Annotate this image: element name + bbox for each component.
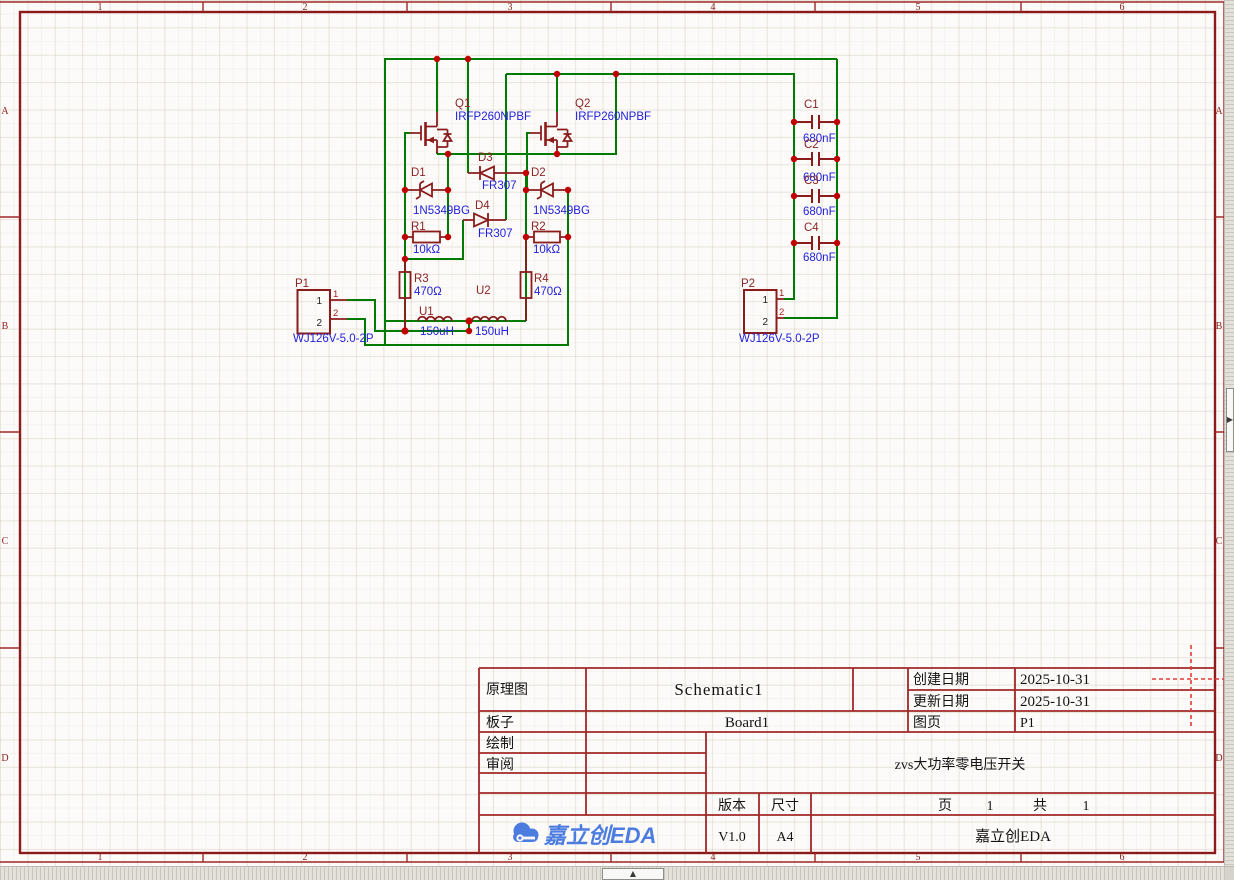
refdes-D3: D3: [478, 152, 493, 164]
pin-designator: 1: [779, 288, 784, 299]
vendor-logo-text: 嘉立创EDA: [543, 823, 656, 848]
refdes-R2: R2: [531, 221, 546, 233]
scrollbar-corner: [1225, 867, 1234, 880]
ruler-row: A: [1, 106, 9, 117]
titleblock-updated-label: 更新日期: [913, 694, 969, 710]
ruler-row: B: [1216, 321, 1223, 332]
titleblock-title: zvs大功率零电压开关: [895, 756, 1026, 773]
ruler-col: 5: [916, 2, 921, 13]
value-C4: 680nF: [803, 252, 836, 264]
sheet-ruler-labels: 1 2 3 4 5 6 1 2 3 4 5 6 A B C D A B C D: [1, 2, 1223, 863]
component-D1[interactable]: [405, 181, 448, 199]
titleblock-board-label: 板子: [486, 715, 514, 731]
component-C4[interactable]: [794, 236, 837, 250]
refdes-P2: P2: [741, 278, 755, 290]
refdes-C4: C4: [804, 222, 819, 234]
component-D3[interactable]: [468, 166, 526, 180]
refdes-U1: U1: [419, 306, 434, 318]
value-Q2: IRFP260NPBF: [575, 111, 651, 123]
refdes-R1: R1: [411, 221, 426, 233]
value-R4: 470Ω: [534, 286, 562, 298]
ruler-col: 3: [508, 2, 513, 13]
refdes-Q2: Q2: [575, 98, 590, 110]
refdes-Q1: Q1: [455, 98, 470, 110]
bottom-panel-expand-handle[interactable]: ▲: [602, 868, 664, 880]
chevron-right-icon: ▶: [1227, 416, 1233, 424]
value-D2: 1N5349BG: [533, 205, 590, 217]
titleblock-size-value: A4: [776, 830, 793, 845]
titleblock-company: 嘉立创EDA: [975, 828, 1051, 845]
value-U1: 150uH: [420, 326, 454, 338]
titleblock-page-label: 页: [938, 799, 952, 814]
component-Q1[interactable]: [410, 112, 452, 153]
component-P1[interactable]: [298, 290, 348, 334]
ruler-row: C: [1216, 536, 1223, 547]
ruler-col: 4: [711, 2, 716, 13]
value-D1: 1N5349BG: [413, 205, 470, 217]
value-D3: FR307: [482, 180, 517, 192]
titleblock-version-value: V1.0: [718, 830, 746, 845]
component-C2[interactable]: [794, 152, 837, 166]
value-U2: 150uH: [475, 326, 509, 338]
schematic-canvas[interactable]: 1 2 3 4 5 6 1 2 3 4 5 6 A B C D A B C D: [0, 0, 1234, 880]
right-panel-expand-handle[interactable]: ▶: [1226, 388, 1234, 452]
component-C3[interactable]: [794, 189, 837, 203]
ruler-col: 1: [98, 852, 103, 863]
component-D2[interactable]: [526, 181, 568, 199]
titleblock-size-label: 尺寸: [771, 798, 799, 814]
cursor-crosshair: [1152, 645, 1232, 726]
pin-designator: 1: [333, 289, 338, 300]
ruler-row: B: [2, 321, 9, 332]
ruler-row: D: [1215, 753, 1222, 764]
ruler-col: 3: [508, 852, 513, 863]
ruler-col: 4: [711, 852, 716, 863]
value-C3: 680nF: [803, 206, 836, 218]
titleblock-pages-total-label: 共: [1033, 798, 1047, 814]
titleblock-sheet-value: P1: [1020, 716, 1035, 731]
titleblock-updated-value: 2025-10-31: [1020, 694, 1090, 710]
title-block: 原理图 Schematic1 创建日期 2025-10-31 更新日期 2025…: [479, 668, 1215, 853]
titleblock-created-label: 创建日期: [913, 672, 969, 688]
titleblock-drawn-label: 绘制: [486, 736, 514, 752]
titleblock-reviewed-label: 审阅: [486, 757, 514, 773]
titleblock-schematic-value: Schematic1: [674, 680, 763, 699]
refdes-C1: C1: [804, 99, 819, 111]
value-P2: WJ126V-5.0-2P: [739, 333, 820, 345]
refdes-R4: R4: [534, 273, 549, 285]
component-R1[interactable]: [405, 232, 448, 243]
titleblock-created-value: 2025-10-31: [1020, 672, 1090, 688]
value-R3: 470Ω: [414, 286, 442, 298]
component-C1[interactable]: [794, 115, 837, 129]
ruler-row: D: [1, 753, 8, 764]
titleblock-sheet-label: 图页: [913, 716, 941, 731]
titleblock-version-label: 版本: [718, 798, 746, 814]
vendor-logo: 嘉立创EDA: [513, 823, 656, 849]
ruler-col: 2: [303, 852, 308, 863]
refdes-U2: U2: [476, 285, 491, 297]
cloud-icon: [513, 823, 539, 843]
pin-number: 2: [316, 318, 322, 329]
value-P1: WJ126V-5.0-2P: [293, 333, 374, 345]
schematic-drawing: 1 2 3 4 5 6 1 2 3 4 5 6 A B C D A B C D: [0, 0, 1234, 880]
titleblock-page-current: 1: [987, 799, 994, 814]
pin-designator: 2: [333, 308, 338, 319]
ruler-col: 6: [1120, 852, 1125, 863]
value-R1: 10kΩ: [413, 244, 441, 256]
refdes-C2: C2: [804, 139, 819, 151]
refdes-D4: D4: [475, 200, 490, 212]
ruler-col: 2: [303, 2, 308, 13]
titleblock-board-value: Board1: [725, 715, 769, 731]
chevron-up-icon: ▲: [630, 870, 636, 878]
refdes-D2: D2: [531, 167, 546, 179]
refdes-R3: R3: [414, 273, 429, 285]
value-Q1: IRFP260NPBF: [455, 111, 531, 123]
refdes-D1: D1: [411, 167, 426, 179]
pin-number: 1: [762, 295, 768, 306]
value-D4: FR307: [478, 228, 513, 240]
ruler-col: 6: [1120, 2, 1125, 13]
refdes-C3: C3: [804, 175, 819, 187]
ruler-col: 5: [916, 852, 921, 863]
titleblock-schematic-label: 原理图: [486, 683, 528, 698]
ruler-col: 1: [98, 2, 103, 13]
pin-number: 1: [316, 296, 322, 307]
sheet-frame: [0, 2, 1224, 862]
component-R2[interactable]: [526, 232, 568, 243]
refdes-P1: P1: [295, 278, 309, 290]
value-R2: 10kΩ: [533, 244, 561, 256]
ruler-row: A: [1215, 106, 1223, 117]
pin-designator: 2: [779, 307, 784, 318]
component-Q2[interactable]: [530, 112, 572, 153]
pin-number: 2: [762, 317, 768, 328]
titleblock-pages-total: 1: [1083, 799, 1090, 814]
ruler-row: C: [2, 536, 9, 547]
